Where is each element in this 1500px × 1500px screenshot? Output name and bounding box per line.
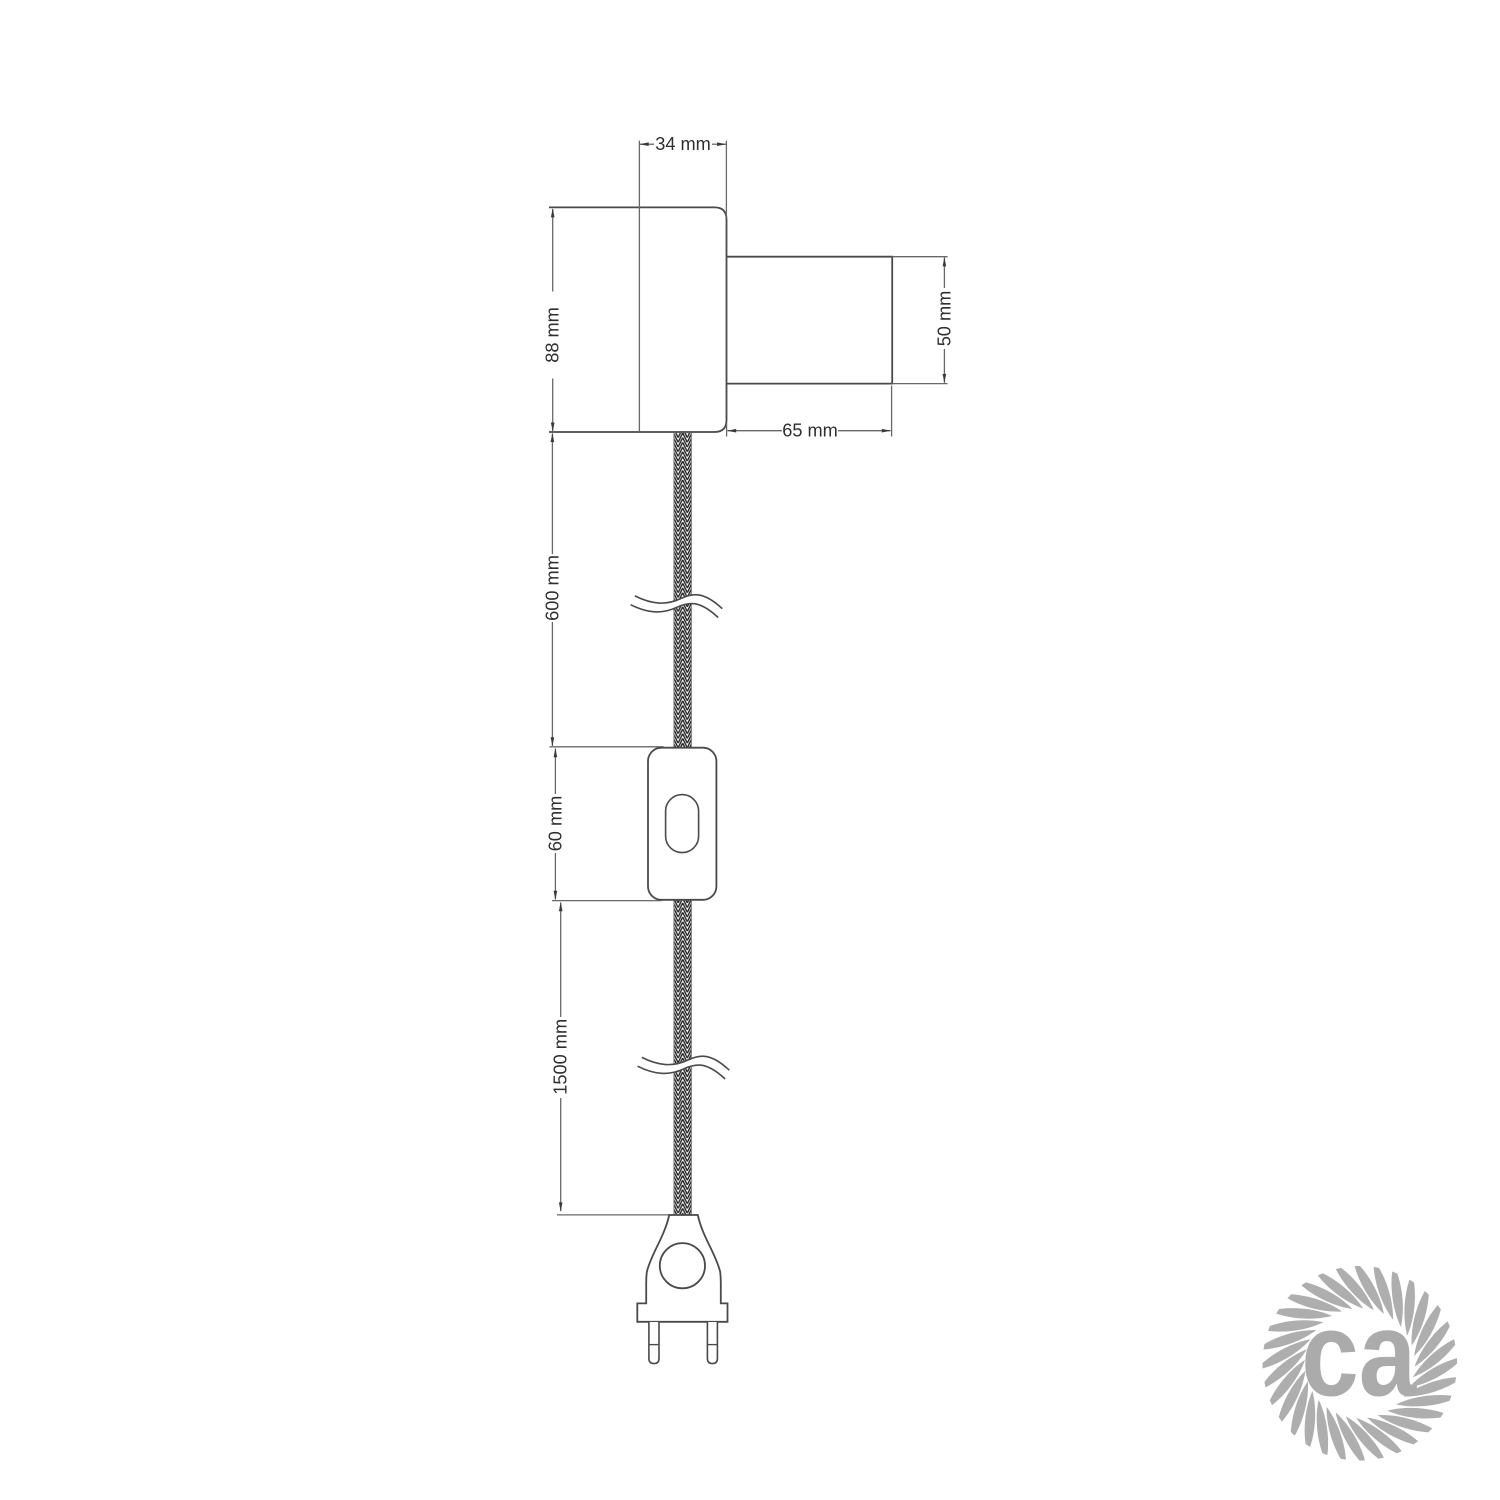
svg-text:60 mm: 60 mm [546,796,566,852]
svg-text:1500 mm: 1500 mm [551,1019,571,1095]
svg-text:600 mm: 600 mm [542,555,562,621]
svg-text:88 mm: 88 mm [543,307,563,363]
svg-text:ca: ca [1301,1285,1417,1421]
svg-text:65 mm: 65 mm [782,421,838,441]
svg-text:34 mm: 34 mm [655,134,711,154]
svg-text:50 mm: 50 mm [935,291,955,347]
